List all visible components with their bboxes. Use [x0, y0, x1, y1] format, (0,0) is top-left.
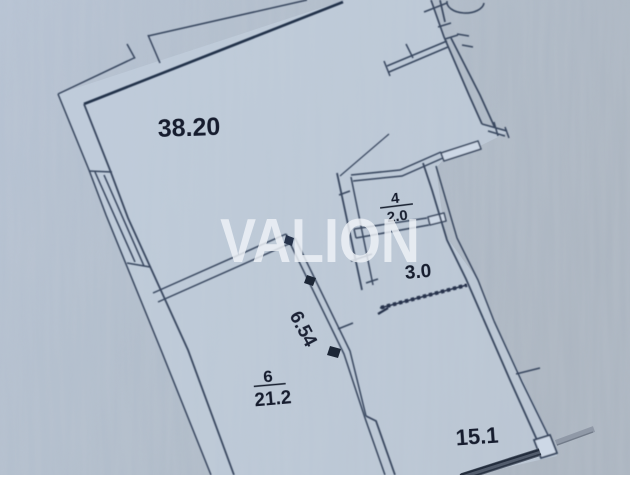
svg-text:6: 6 [262, 367, 273, 387]
svg-text:21.2: 21.2 [254, 387, 293, 411]
svg-text:VALION: VALION [220, 207, 420, 276]
svg-text:15.1: 15.1 [455, 423, 499, 451]
svg-text:38.20: 38.20 [157, 113, 221, 143]
